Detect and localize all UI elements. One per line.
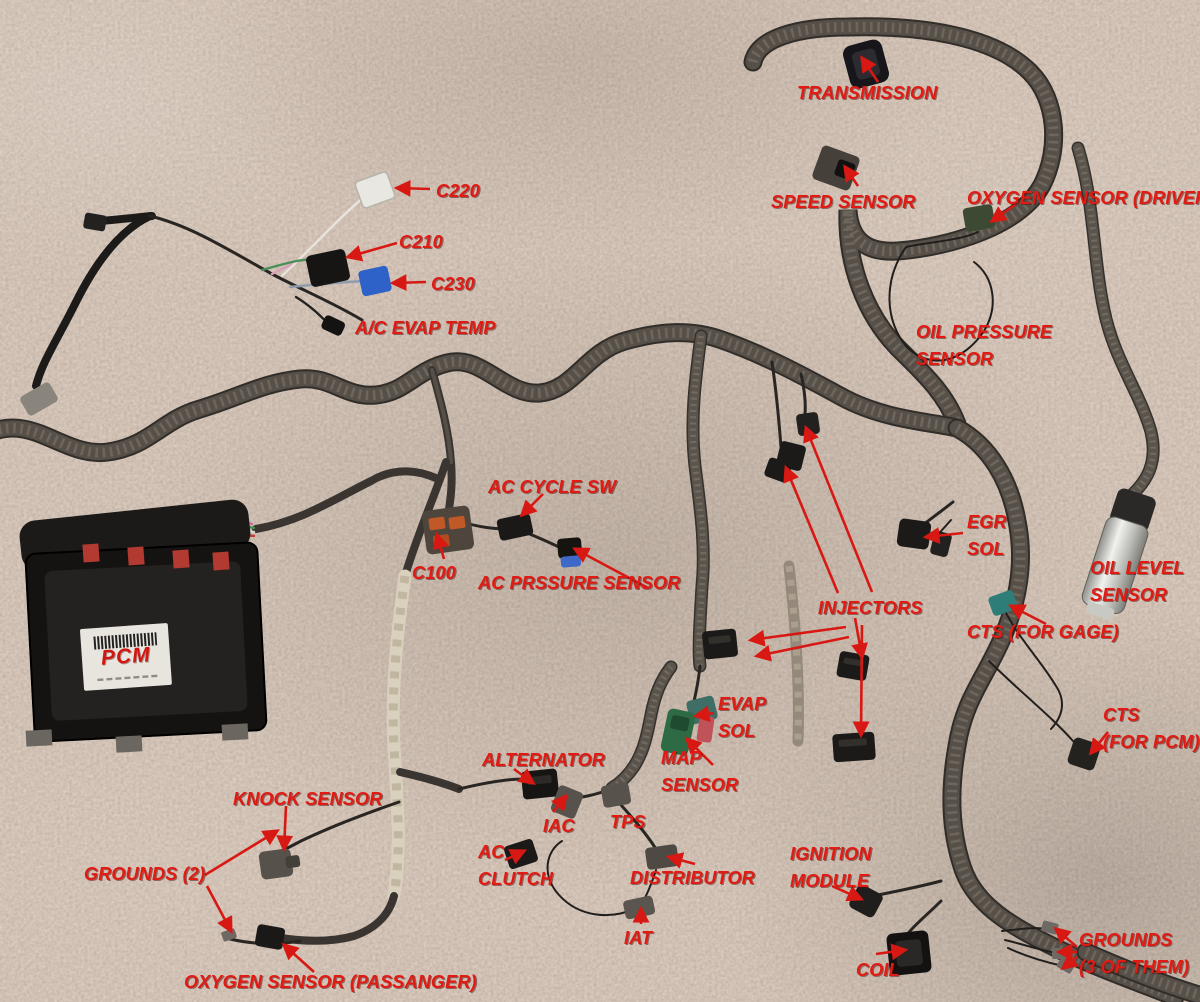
label-map-sensor: MAPSENSOR [661, 745, 738, 800]
label-cts-for-gage: CTS (FOR GAGE) [967, 619, 1119, 646]
label-c220: C220 [436, 178, 480, 205]
label-knock-sensor: KNOCK SENSOR [233, 786, 382, 813]
label-c210: C210 [399, 229, 443, 256]
label-iac: IAC [543, 813, 575, 840]
label-oil-level-sensor: OIL LEVELSENSOR [1090, 555, 1184, 610]
wiring-harness-photo: TRANSMISSIONSPEED SENSOROXYGEN SENSOR (D… [0, 0, 1200, 1002]
label-oxygen-sensor-passanger: OXYGEN SENSOR (PASSANGER) [184, 969, 477, 996]
label-iat: IAT [624, 925, 652, 952]
label-oxygen-sensor-drivers: OXYGEN SENSOR (DRIVERS) [967, 185, 1200, 212]
label-coil: COIL [856, 957, 900, 984]
label-tps: TPS [610, 809, 646, 836]
label-ac-evap-temp: A/C EVAP TEMP [355, 315, 496, 342]
label-egr-sol: EGRSOL [967, 509, 1007, 564]
label-cts-for-pcm: CTS(FOR PCM) [1103, 702, 1200, 757]
label-c230: C230 [431, 271, 475, 298]
label-injectors: INJECTORS [818, 595, 923, 622]
label-ac-cycle-sw: AC CYCLE SW [488, 474, 616, 501]
label-distributor: DISTRIBUTOR [630, 865, 755, 892]
label-c100: C100 [412, 560, 456, 587]
label-grounds-2: GROUNDS (2) [84, 861, 205, 888]
pcm-sticker-text: PCM [100, 643, 151, 670]
label-speed-sensor: SPEED SENSOR [771, 189, 915, 216]
label-ignition-module: IGNITIONMODULE [790, 841, 872, 896]
label-evap-sol: EVAPSOL [718, 691, 766, 746]
labels-layer: TRANSMISSIONSPEED SENSOROXYGEN SENSOR (D… [0, 0, 1200, 1002]
label-oil-pressure-sensor: OIL PRESSURESENSOR [916, 319, 1052, 374]
label-transmission: TRANSMISSION [797, 80, 937, 107]
label-ac-clutch: ACCLUTCH [478, 839, 553, 894]
label-grounds-3: GROUNDS(3 OF THEM) [1079, 927, 1189, 982]
label-alternator: ALTERNATOR [482, 747, 605, 774]
label-ac-prssure-sensor: AC PRSSURE SENSOR [478, 570, 680, 597]
